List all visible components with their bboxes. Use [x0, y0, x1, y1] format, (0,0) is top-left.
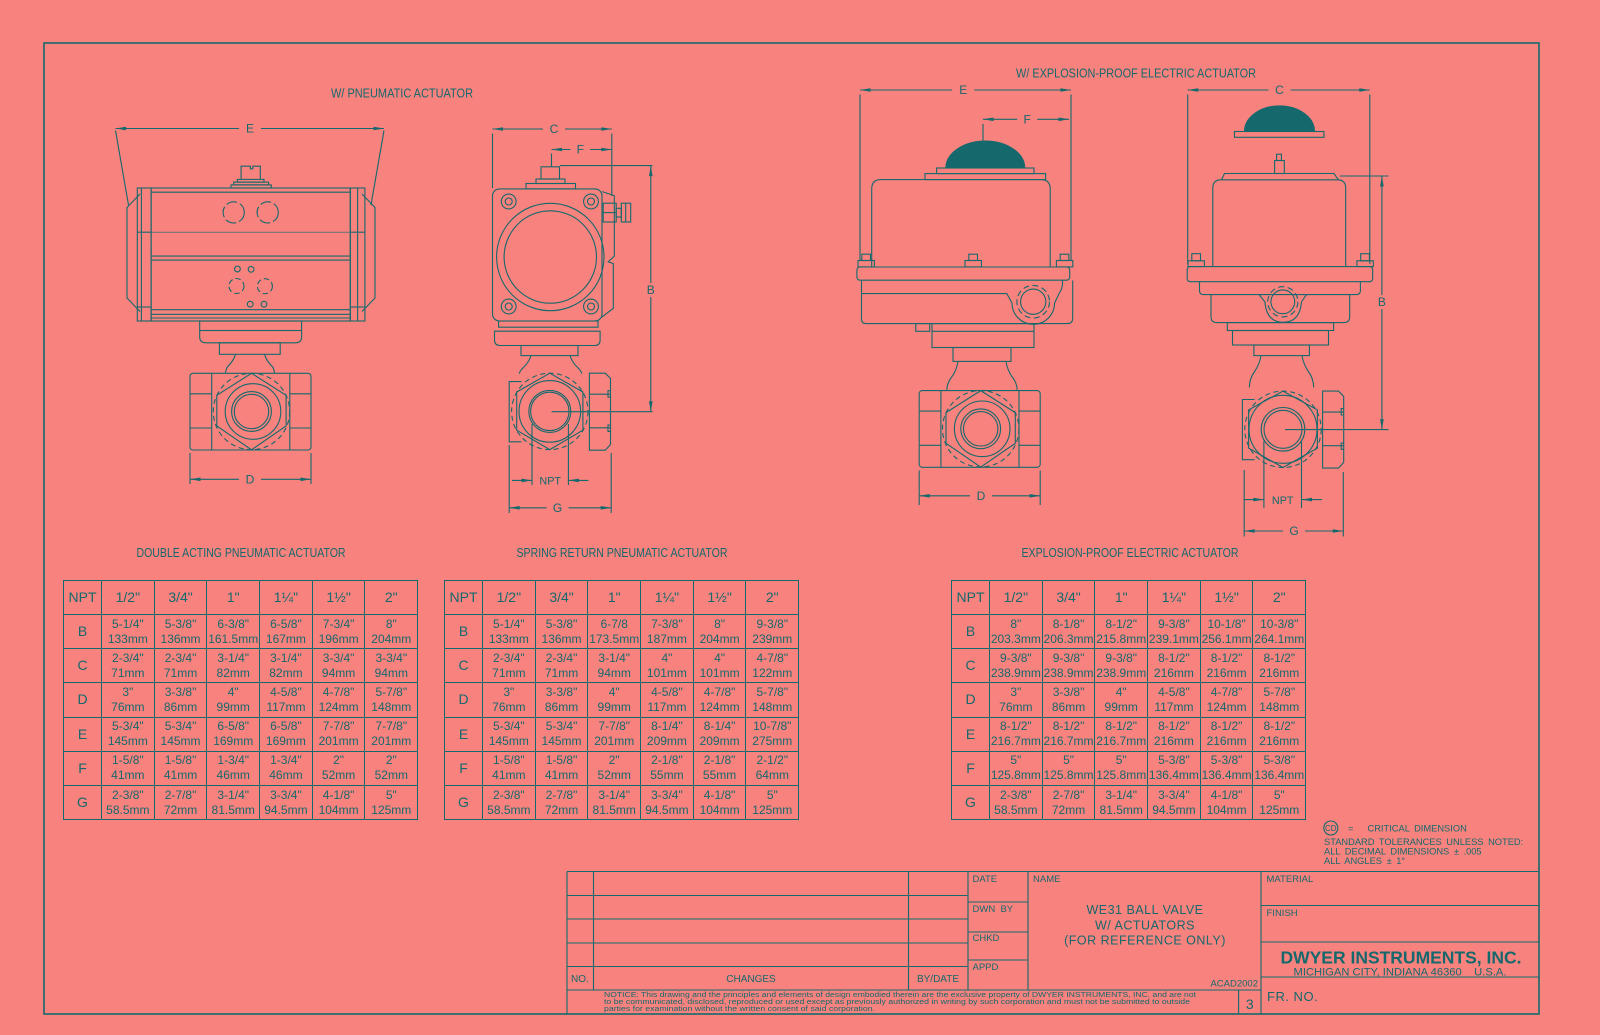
svg-text:G: G: [1289, 524, 1298, 538]
svg-text:F: F: [1024, 113, 1031, 127]
svg-text:ALL ANGLES ± 1°: ALL ANGLES ± 1°: [1324, 856, 1405, 866]
svg-text:DATE: DATE: [973, 874, 998, 885]
svg-text:APPD: APPD: [973, 962, 999, 973]
svg-text:MATERIAL: MATERIAL: [1267, 874, 1314, 885]
svg-text:STANDARD TOLERANCES UNLESS NOT: STANDARD TOLERANCES UNLESS NOTED:: [1324, 837, 1523, 847]
svg-text:WE31 BALL VALVE: WE31 BALL VALVE: [1086, 903, 1203, 917]
svg-text:NOTICE: This drawing and the p: NOTICE: This drawing and the principles …: [604, 992, 1196, 999]
svg-text:G: G: [553, 501, 562, 515]
svg-text:DOUBLE ACTING PNEUMATIC ACTUAT: DOUBLE ACTING PNEUMATIC ACTUATOR: [137, 546, 346, 560]
svg-text:to be communicated, disclosed,: to be communicated, disclosed, reproduce…: [604, 999, 1190, 1006]
svg-text:NO.: NO.: [571, 974, 589, 985]
svg-text:MICHIGAN CITY, INDIANA 46360: MICHIGAN CITY, INDIANA 46360 U.S.A.: [1294, 967, 1507, 979]
svg-text:CRITICAL DIMENSION: CRITICAL DIMENSION: [1368, 824, 1467, 834]
svg-text:W/ PNEUMATIC ACTUATOR: W/ PNEUMATIC ACTUATOR: [331, 87, 473, 101]
svg-text:DWN BY: DWN BY: [973, 904, 1014, 915]
svg-text:E: E: [246, 122, 254, 136]
svg-text:NPT: NPT: [539, 476, 561, 488]
svg-text:C: C: [1275, 83, 1284, 97]
svg-text:ACAD2002: ACAD2002: [1210, 979, 1258, 990]
svg-text:=: =: [1348, 824, 1353, 834]
svg-text:BY/DATE: BY/DATE: [917, 974, 959, 985]
svg-text:B: B: [1378, 295, 1386, 309]
svg-text:W/ ACTUATORS: W/ ACTUATORS: [1095, 919, 1195, 933]
svg-text:FR. NO.: FR. NO.: [1267, 989, 1318, 1004]
svg-text:DWYER INSTRUMENTS, INC.: DWYER INSTRUMENTS, INC.: [1281, 948, 1522, 968]
svg-text:D: D: [246, 473, 255, 487]
svg-text:F: F: [577, 143, 584, 157]
svg-text:3: 3: [1246, 996, 1254, 1012]
svg-text:ALL DECIMAL DIMENSIONS ± .005: ALL DECIMAL DIMENSIONS ± .005: [1324, 847, 1482, 857]
svg-text:EXPLOSION-PROOF ELECTRIC ACTUA: EXPLOSION-PROOF ELECTRIC ACTUATOR: [1022, 546, 1239, 560]
svg-text:CHANGES: CHANGES: [726, 974, 776, 985]
svg-text:CD: CD: [1325, 824, 1337, 833]
svg-text:SPRING RETURN PNEUMATIC ACTUAT: SPRING RETURN PNEUMATIC ACTUATOR: [517, 546, 728, 560]
svg-text:NAME: NAME: [1033, 874, 1060, 885]
svg-text:B: B: [647, 283, 655, 297]
svg-text:FINISH: FINISH: [1267, 908, 1298, 919]
svg-text:NPT: NPT: [1272, 495, 1294, 507]
svg-text:parties for examination withou: parties for examination without the writ…: [604, 1006, 875, 1013]
svg-text:C: C: [550, 122, 559, 136]
svg-text:(FOR REFERENCE ONLY): (FOR REFERENCE ONLY): [1064, 934, 1226, 948]
svg-text:E: E: [959, 83, 967, 97]
svg-text:D: D: [977, 489, 986, 503]
svg-text:CHKD: CHKD: [973, 933, 1000, 944]
svg-text:W/ EXPLOSION-PROOF ELECTRIC AC: W/ EXPLOSION-PROOF ELECTRIC ACTUATOR: [1016, 67, 1256, 81]
